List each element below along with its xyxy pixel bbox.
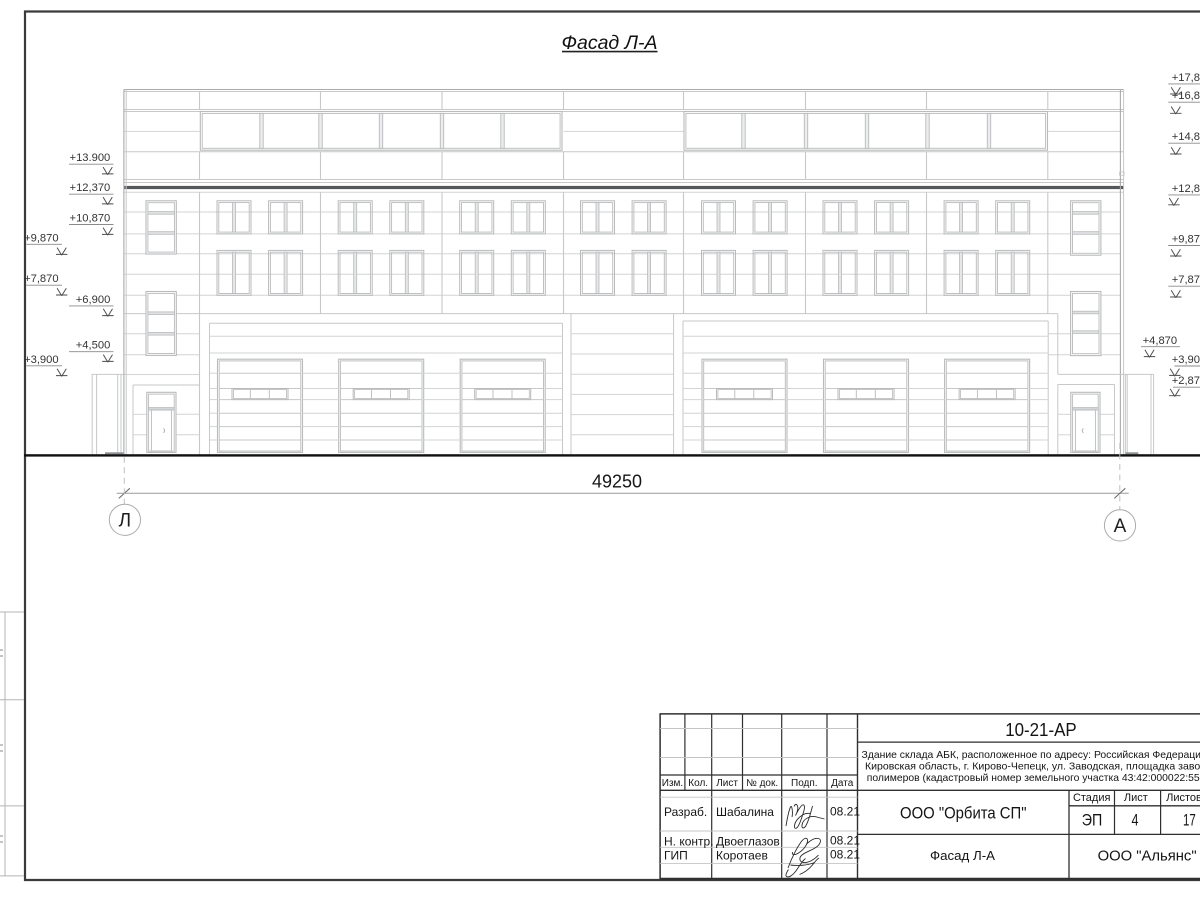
svg-text:+10,870: +10,870 [70,213,111,225]
svg-text:Коротаев: Коротаев [716,849,768,863]
svg-text:+7,870: +7,870 [1172,274,1200,286]
svg-text:Дата: Дата [831,778,854,789]
svg-text:4: 4 [1132,811,1139,829]
svg-text:Двоеглазов: Двоеглазов [716,835,780,849]
svg-text:10-21-АР: 10-21-АР [1005,719,1076,740]
svg-text:+3,900: +3,900 [1172,354,1200,366]
svg-text:+6,900: +6,900 [76,294,111,306]
svg-text:Л: Л [119,511,131,532]
svg-text:Разраб.: Разраб. [664,805,707,819]
svg-text:+2,870: +2,870 [1172,375,1200,387]
svg-text:ГИП: ГИП [664,849,688,863]
svg-text:Кировская область, г. Кирово-Ч: Кировская область, г. Кирово-Чепецк, ул.… [865,760,1200,772]
svg-text:+7,870: +7,870 [24,273,59,285]
svg-text:08.21: 08.21 [830,834,860,848]
svg-text:№ док.: № док. [746,778,778,789]
svg-text:+4,500: +4,500 [76,340,111,352]
svg-text:17: 17 [1183,811,1196,829]
svg-text:Изм.: Изм. [662,778,683,789]
svg-text:+14,870: +14,870 [1172,131,1200,143]
svg-text:+13.900: +13.900 [70,152,111,164]
svg-text:08.21: 08.21 [830,805,860,819]
svg-text:Н. контр.: Н. контр. [664,835,714,849]
svg-text:+16,870: +16,870 [1172,90,1200,102]
svg-text:+3,900: +3,900 [24,354,59,366]
svg-text:Лист: Лист [716,778,738,789]
svg-text:Здание склада АБК, расположенн: Здание склада АБК, расположенное по адре… [862,750,1200,761]
svg-text:Шабалина: Шабалина [716,805,774,819]
svg-text:А: А [1114,516,1127,537]
svg-text:ООО "Альянс": ООО "Альянс" [1098,847,1197,864]
svg-text:Фасад Л-А: Фасад Л-А [930,848,995,863]
svg-text:Подп.: Подп. [791,778,818,789]
svg-text:+9,870: +9,870 [24,232,59,244]
svg-text:Фасад Л-А: Фасад Л-А [561,32,657,54]
svg-text:+4,870: +4,870 [1143,335,1178,347]
svg-text:49250: 49250 [592,471,642,491]
svg-text:+12,370: +12,370 [70,182,111,194]
svg-text:08.21: 08.21 [830,848,860,862]
svg-text:полимеров (кадастровый номер з: полимеров (кадастровый номер земельного … [867,773,1200,784]
svg-text:Листов: Листов [1166,792,1200,804]
svg-text:ООО "Орбита СП": ООО "Орбита СП" [900,804,1027,822]
svg-text:Кол.: Кол. [688,778,708,789]
svg-text:+9,870: +9,870 [1172,234,1200,246]
svg-text:Стадия: Стадия [1073,792,1111,804]
svg-text:+17,870: +17,870 [1172,72,1200,84]
svg-text:Лист: Лист [1124,792,1148,804]
svg-text:ЭП: ЭП [1082,812,1103,830]
svg-text:+12,870: +12,870 [1172,183,1200,195]
